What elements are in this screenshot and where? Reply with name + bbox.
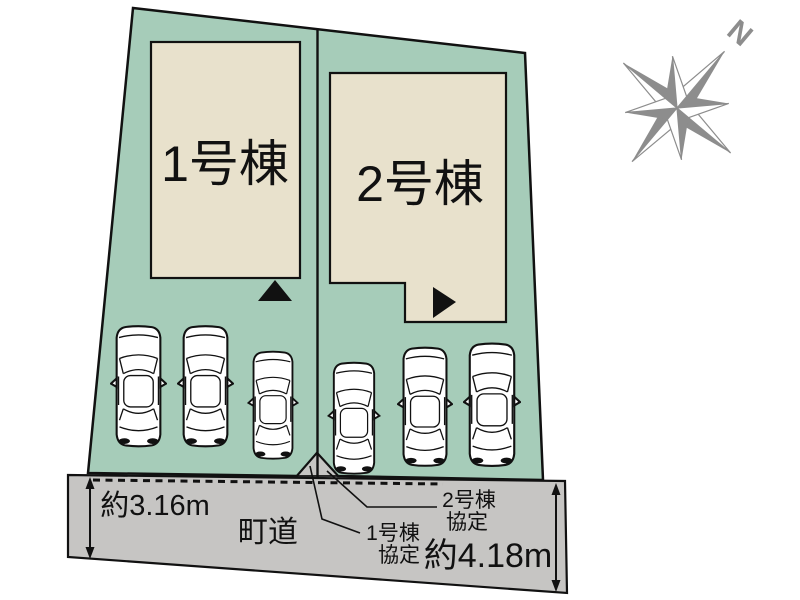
road-width-left-label: 約3.16m [100, 489, 210, 522]
parked-car [329, 363, 380, 474]
svg-text:1号棟: 1号棟 [366, 522, 420, 545]
building-1-label: 1号棟 [161, 136, 289, 192]
site-plan-canvas: 1号棟 2号棟 約3.16m 町道 約4.18m 1号棟 協定 2号棟 協定 [0, 0, 800, 600]
svg-text:2号棟: 2号棟 [442, 489, 496, 512]
parked-car [178, 326, 233, 446]
parked-car [464, 344, 520, 466]
svg-text:協定: 協定 [378, 544, 420, 567]
compass-rose-icon: N [578, 0, 800, 207]
building-2-label: 2号棟 [356, 156, 484, 212]
compass-north-label: N [721, 14, 759, 53]
road-label: 町道 [238, 516, 298, 549]
parked-car [398, 348, 452, 466]
agreement2-label: 2号棟 協定 [442, 489, 496, 534]
svg-text:協定: 協定 [446, 511, 488, 534]
road-width-right-label: 約4.18m [424, 537, 553, 575]
parked-car [248, 352, 297, 459]
parked-car [111, 326, 166, 446]
site-plan-drawing: 1号棟 2号棟 約3.16m 町道 約4.18m 1号棟 協定 2号棟 協定 [0, 0, 800, 600]
